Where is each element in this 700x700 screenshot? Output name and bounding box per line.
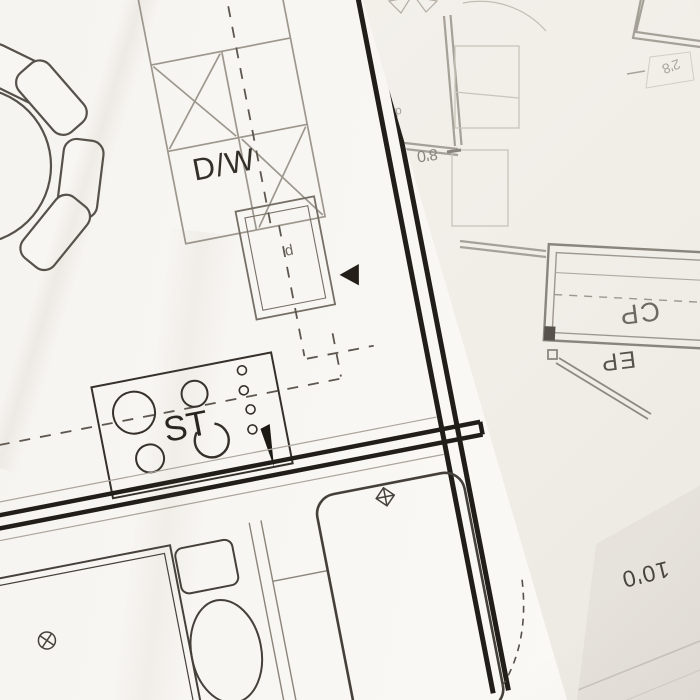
cabinet-x-mark xyxy=(153,54,236,149)
door-window-marks xyxy=(389,0,546,31)
under-walls xyxy=(396,0,700,257)
stove-knob-dots xyxy=(235,365,260,435)
dim-8ft-label: 8'0 xyxy=(416,145,439,165)
appliance-box xyxy=(236,196,336,319)
toilet-bowl xyxy=(182,594,271,700)
tub-drain-symbol xyxy=(374,486,396,508)
cp-room-label: CP xyxy=(617,296,662,331)
door-swing-arc-under xyxy=(463,1,546,31)
under-rooms xyxy=(452,46,519,226)
dim-2-8-label: 2'8 xyxy=(660,56,683,77)
appliance-label: d xyxy=(283,241,294,259)
dim-10ft-label: 10'0 xyxy=(618,556,672,593)
partition-line xyxy=(249,510,357,700)
toilet-tank xyxy=(174,539,240,595)
sink-drain-symbol xyxy=(37,631,57,651)
section-arrow xyxy=(338,264,363,289)
kitchen-counter xyxy=(135,0,325,244)
toilet xyxy=(171,537,271,700)
under-wall-line xyxy=(622,670,700,700)
stove-label: ST xyxy=(160,403,211,450)
blueprint-photo: 10'0 xyxy=(0,0,700,700)
dining-set xyxy=(0,22,128,300)
dishwasher-label: D/W xyxy=(190,141,259,187)
ep-room-label: EP xyxy=(598,345,637,376)
dimension-ticks xyxy=(447,52,694,152)
stove-burner xyxy=(109,388,158,437)
room-cp xyxy=(544,244,700,349)
wall-end-cap xyxy=(544,326,556,341)
bathtub xyxy=(314,469,507,700)
